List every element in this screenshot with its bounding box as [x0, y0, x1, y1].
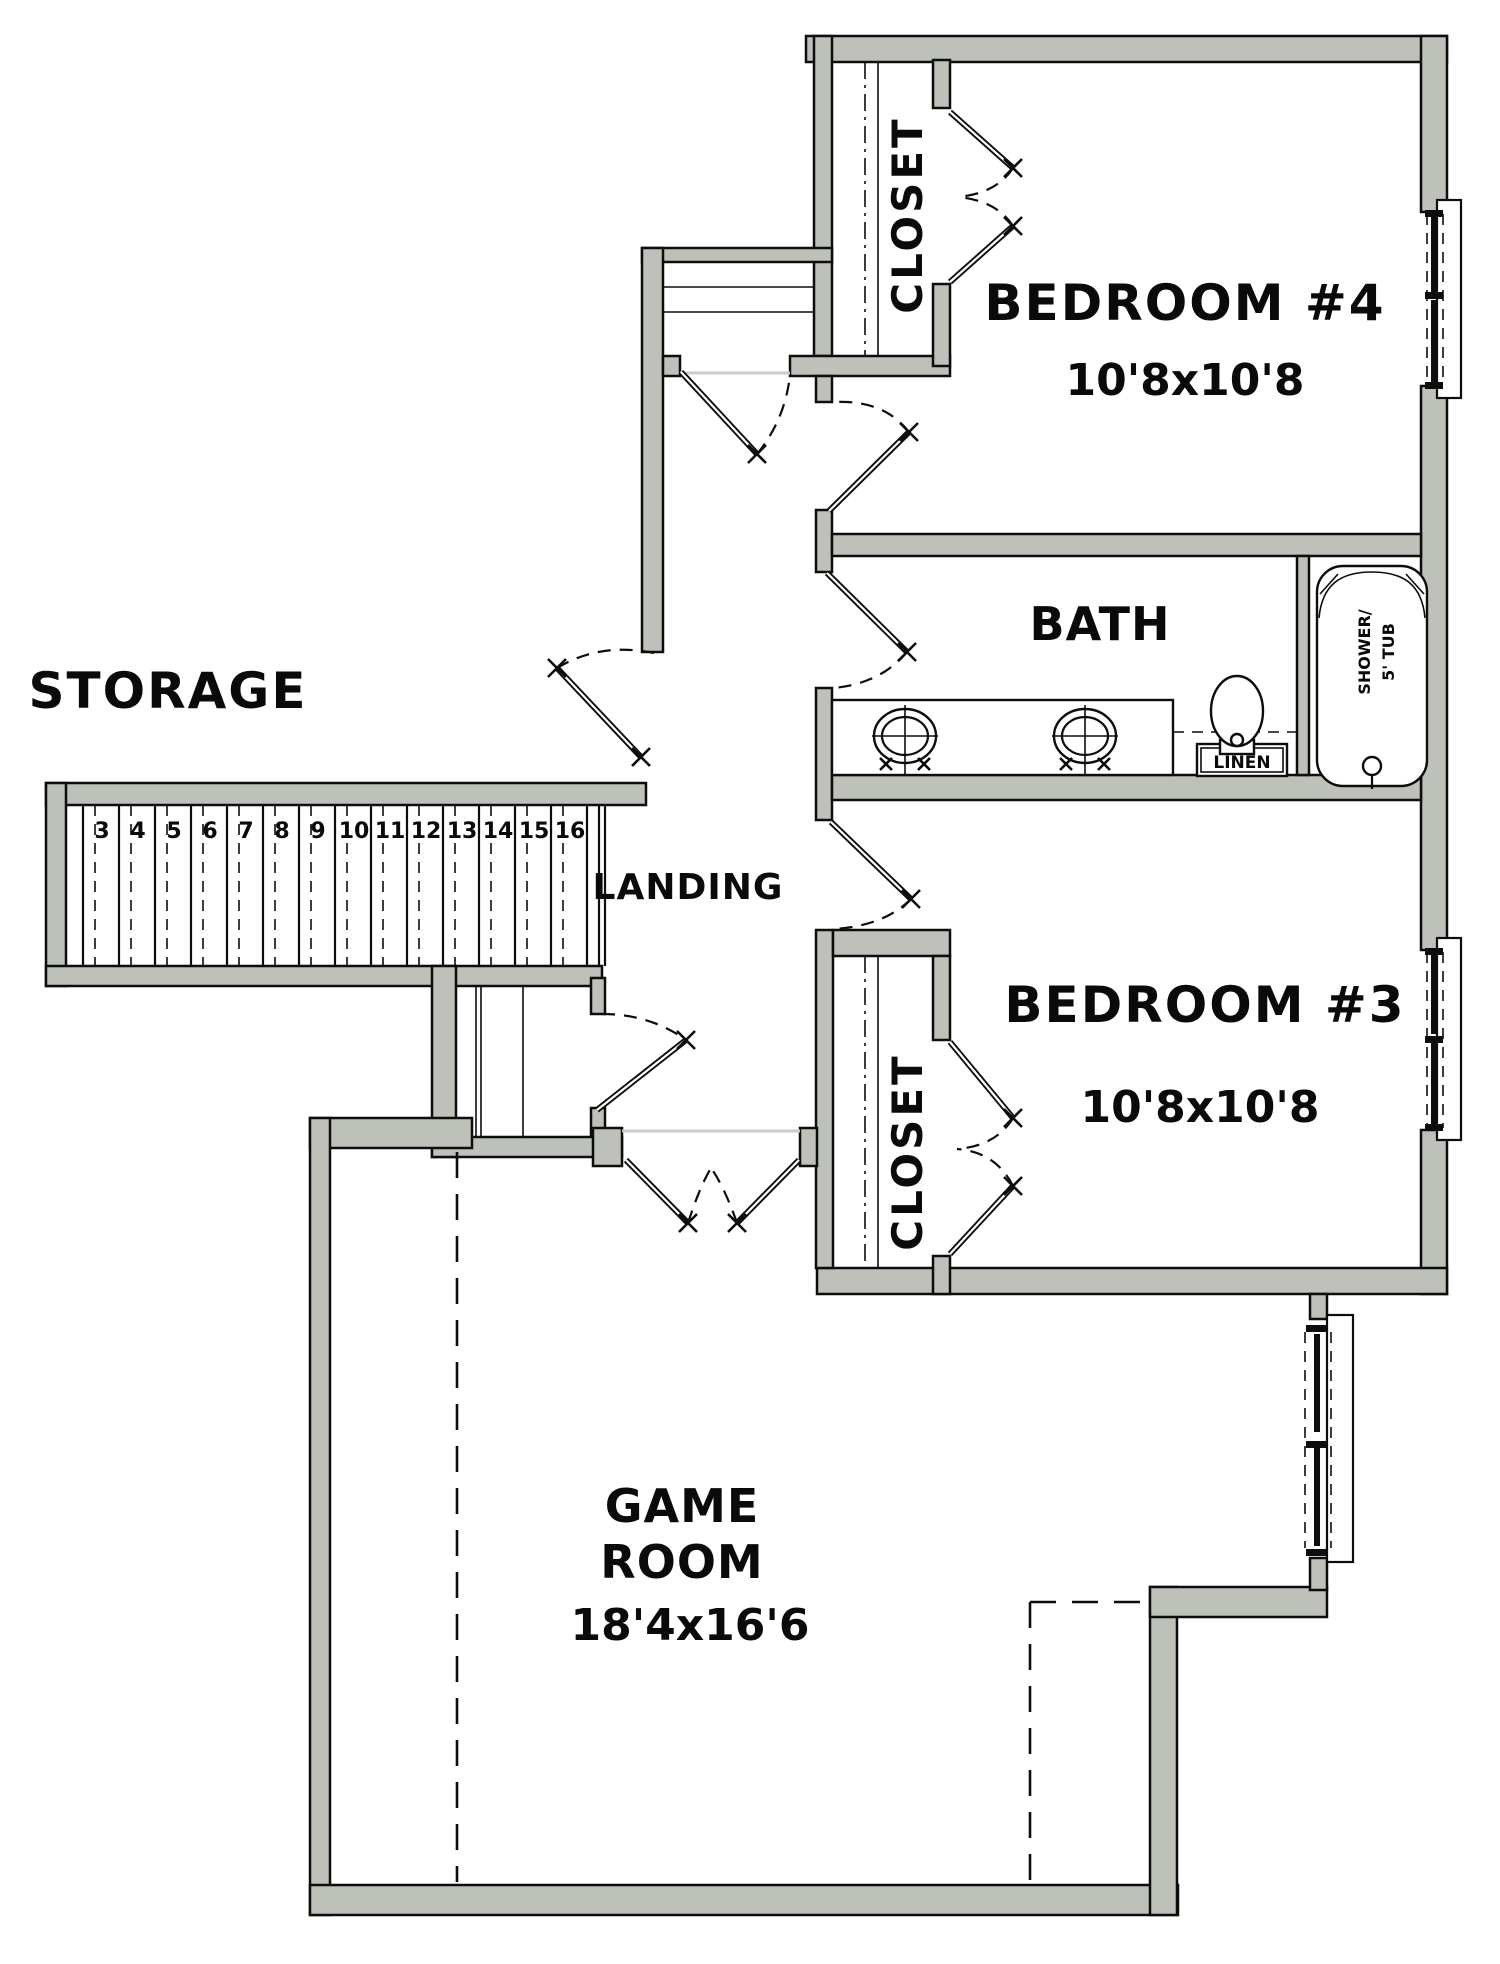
tub-label-line1: SHOWER/: [1355, 609, 1374, 694]
wall-segment: [591, 978, 605, 1014]
stair-number: 7: [238, 819, 253, 844]
stair-number: 3: [94, 819, 109, 844]
bathtub: SHOWER/ 5' TUB: [1317, 566, 1427, 789]
wall-segment: [790, 356, 950, 376]
bedroom3-label: BEDROOM #3: [1004, 976, 1405, 1034]
stair-number: 13: [447, 819, 478, 844]
wall-segment: [1310, 1558, 1327, 1590]
bedroom3-dimensions: 10'8x10'8: [1080, 1082, 1319, 1133]
landing-label: LANDING: [593, 867, 784, 908]
wall-segment: [832, 534, 1421, 556]
stair-number: 6: [202, 819, 217, 844]
wall-segment: [310, 1118, 330, 1915]
wall-segment: [663, 356, 680, 376]
bedroom3-closet-label: CLOSET: [883, 1053, 932, 1250]
wall-segment: [933, 60, 950, 108]
wall-segment: [642, 248, 663, 652]
wall-segment: [817, 1268, 1447, 1294]
bedroom4-entry-door: [829, 402, 918, 511]
wall-segment: [816, 376, 832, 402]
wall-segment: [806, 36, 1447, 62]
storage-label: STORAGE: [28, 662, 307, 720]
staircase: 3 4 5 6 7 8 9 10 11 12 13 14 15 16: [83, 805, 605, 966]
tub-label-line2: 5' TUB: [1379, 623, 1398, 681]
stair-number: 16: [555, 819, 586, 844]
floor-plan-drawing: 3 4 5 6 7 8 9 10 11 12 13 14 15 16: [0, 0, 1500, 1964]
bedroom4-window: [1425, 200, 1461, 398]
bedroom3-entry-door: [831, 822, 920, 929]
bedroom4-label: BEDROOM #4: [984, 274, 1385, 332]
wall-segment: [814, 36, 832, 356]
wall-segment: [816, 510, 832, 572]
stair-number: 12: [411, 819, 442, 844]
bedroom4-closet-label: CLOSET: [883, 116, 932, 313]
stair-number: 11: [375, 819, 406, 844]
stair-number: 4: [130, 819, 145, 844]
game-room-label-line2: ROOM: [600, 1535, 763, 1589]
wall-segment: [1310, 1294, 1327, 1319]
linen-label: LINEN: [1213, 753, 1270, 773]
wall-segment: [1150, 1587, 1177, 1915]
stair-numbers: 3 4 5 6 7 8 9 10 11 12 13 14 15 16: [94, 819, 585, 844]
room-labels: STORAGE LANDING BATH BEDROOM #4 10'8x10'…: [28, 116, 1405, 1651]
wall-segment: [1297, 556, 1309, 775]
game-room-label-line1: GAME: [605, 1479, 760, 1533]
wall-segment: [933, 1256, 950, 1294]
bath-label: BATH: [1030, 597, 1171, 651]
stair-number: 15: [519, 819, 550, 844]
stair-number: 8: [274, 819, 289, 844]
stair-number: 10: [339, 819, 370, 844]
storage-door: [548, 650, 654, 766]
wall-segment: [46, 783, 66, 986]
game-room-dimensions: 18'4x16'6: [570, 1600, 809, 1651]
wall-segment: [46, 966, 602, 986]
vestibule-door: [681, 372, 790, 463]
bedroom4-closet-doors: [950, 112, 1022, 282]
bedroom3-window: [1425, 938, 1461, 1140]
bedroom3-closet-doors: [950, 1042, 1022, 1254]
wall-segment: [1421, 36, 1447, 212]
wall-segment: [1150, 1587, 1327, 1617]
wall-segment: [310, 1118, 472, 1148]
wall-segment: [642, 248, 832, 262]
wall-segment: [933, 956, 950, 1040]
stair-number: 14: [483, 819, 514, 844]
wall-segment: [46, 783, 646, 805]
wall-segment: [816, 930, 833, 1268]
bath-door: [827, 573, 916, 688]
wall-segment: [816, 688, 832, 820]
game-room-window: [1305, 1315, 1353, 1562]
game-room-double-doors: [626, 1160, 799, 1232]
toilet: [1211, 676, 1263, 754]
shower-drain-icon: [1363, 757, 1381, 775]
bedroom4-dimensions: 10'8x10'8: [1065, 355, 1304, 406]
stair-number: 9: [310, 819, 325, 844]
wall-segment: [833, 930, 950, 956]
wall-segment: [310, 1885, 1178, 1915]
wall-segment: [800, 1128, 817, 1166]
floor-plan-page: 3 4 5 6 7 8 9 10 11 12 13 14 15 16: [0, 0, 1500, 1964]
wall-segment: [933, 284, 950, 366]
stair-number: 5: [166, 819, 181, 844]
wall-segment: [593, 1128, 622, 1166]
understair-closet-door: [597, 1014, 695, 1110]
